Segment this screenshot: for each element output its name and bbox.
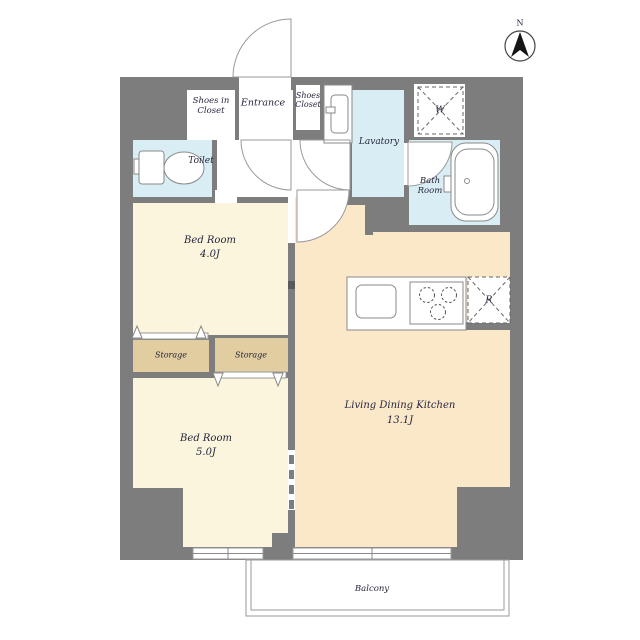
bathtub-icon	[444, 143, 498, 221]
label-storage-right: Storage	[235, 351, 267, 360]
label-balcony: Balcony	[355, 584, 389, 594]
hall-toilet-door-arc	[241, 140, 291, 190]
label-lavatory: Lavatory	[359, 137, 399, 147]
ldk-window	[293, 548, 451, 559]
washbasin-icon	[324, 85, 352, 143]
storage-right-door	[213, 372, 286, 386]
label-storage-left: Storage	[155, 351, 187, 360]
label-refrigerator: R	[485, 295, 492, 306]
label-shoes-in-closet: Shoes in Closet	[193, 96, 230, 116]
north-compass-icon	[505, 31, 535, 61]
entrance-door-arc	[233, 19, 291, 77]
label-bath-room: Bath Room	[418, 176, 443, 196]
storage-left-door	[132, 326, 208, 339]
compass-north-label: N	[517, 19, 524, 28]
label-toilet: Toilet	[188, 156, 213, 166]
label-entrance: Entrance	[241, 98, 285, 109]
ldk-door-arc	[297, 190, 349, 242]
label-ldk: Living Dining Kitchen 13.1J	[345, 398, 456, 428]
kitchen-counter-icon	[347, 277, 466, 330]
floor-plan: N Shoes in Closet Entrance Shoes Closet …	[0, 0, 640, 640]
lavatory-door-arc	[300, 140, 350, 190]
bedroom-large-window	[193, 548, 263, 559]
label-shoes-closet: Shoes Closet	[295, 91, 321, 109]
label-bedroom-5-0j: Bed Room 5.0J	[180, 432, 232, 460]
label-bedroom-4-0j: Bed Room 4.0J	[184, 234, 236, 262]
label-washing-machine: W	[435, 105, 445, 116]
